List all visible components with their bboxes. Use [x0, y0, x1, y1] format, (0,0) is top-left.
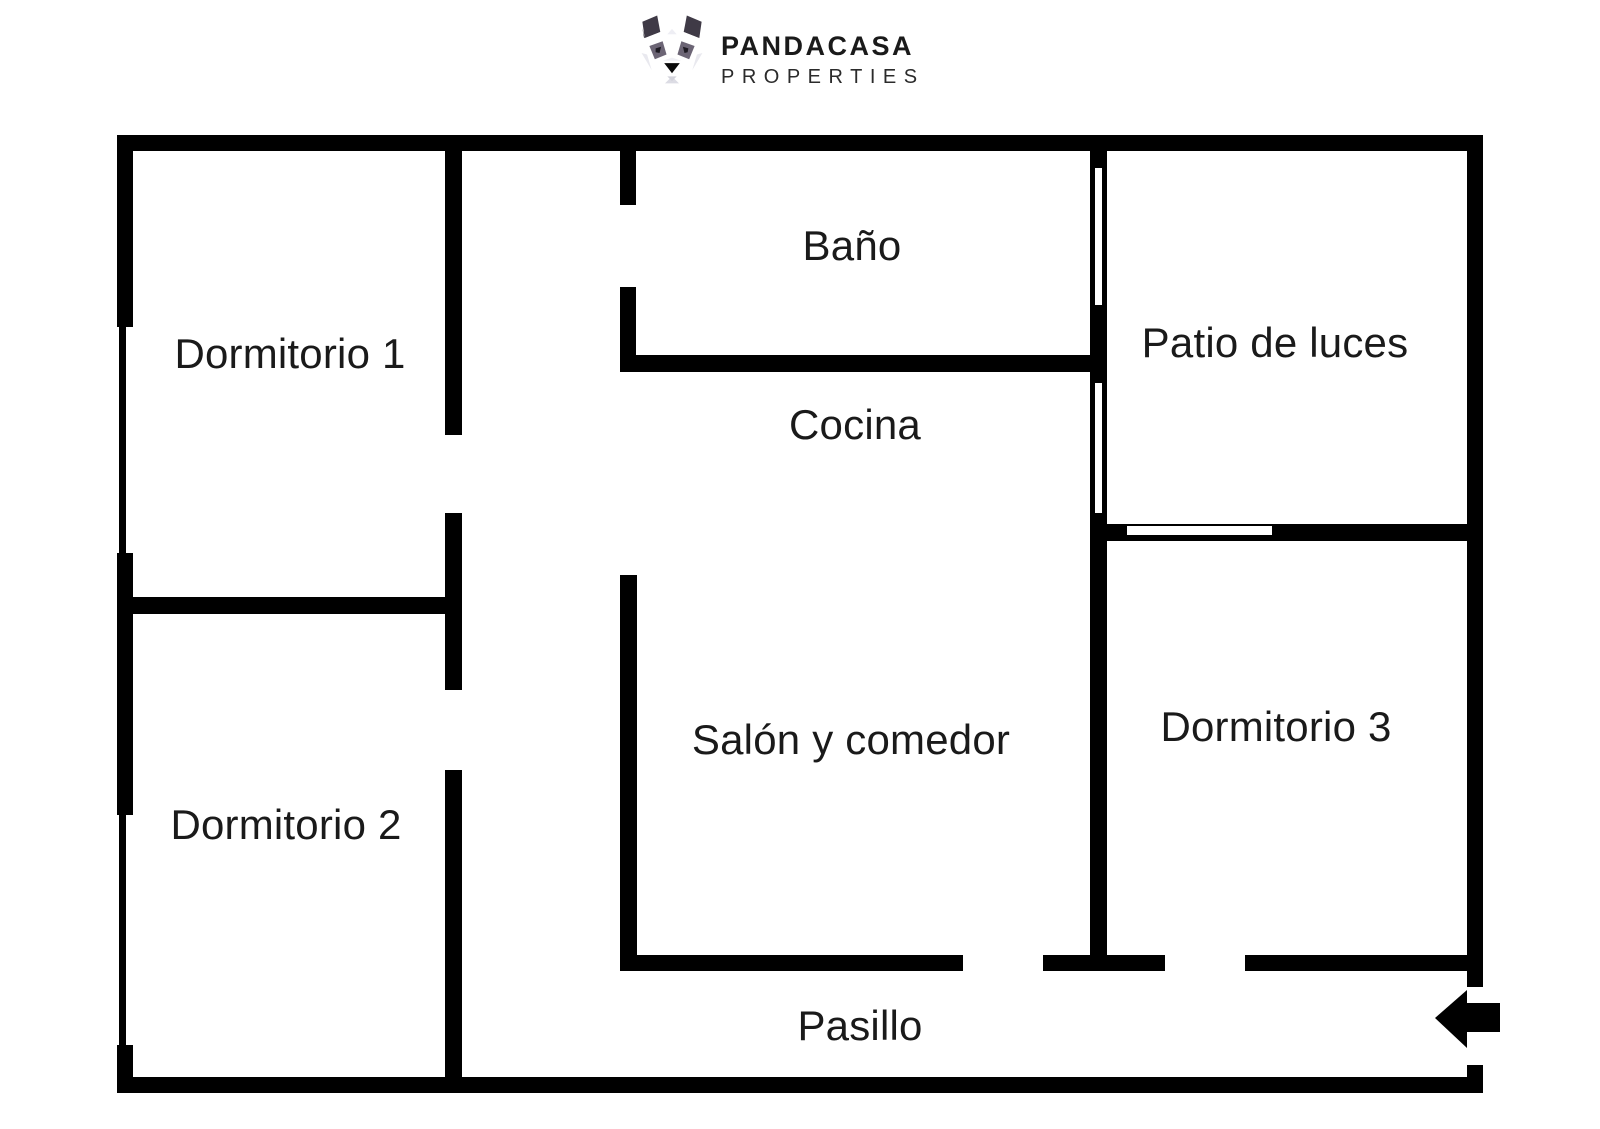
window-cocina-patio-edge-right — [1102, 383, 1107, 513]
room-label-dormitorio-3: Dormitorio 3 — [1160, 703, 1391, 751]
logo: PANDACASA PROPERTIES — [633, 14, 925, 92]
window-bano-patio-edge-right — [1102, 168, 1107, 305]
room-label-cocina: Cocina — [789, 401, 921, 449]
wall-pasillo-top-middle — [1043, 955, 1165, 971]
floor-plan: PANDACASA PROPERTIES Dormit — [0, 0, 1600, 1129]
wall-bano-left-upper — [620, 150, 636, 205]
wall-pasillo-top-salon — [620, 955, 963, 971]
wall-pasillo-top-dorm3 — [1245, 955, 1483, 971]
wall-outer-bottom — [117, 1077, 1483, 1093]
wall-salon-left — [620, 575, 637, 971]
panda-logo-icon — [633, 14, 711, 92]
window-dorm3-patio — [1127, 526, 1272, 535]
logo-text: PANDACASA PROPERTIES — [721, 19, 925, 87]
window-dormitorio-1-glass — [119, 327, 126, 553]
wall-outer-right-upper — [1467, 135, 1483, 987]
wall-outer-top — [117, 135, 1483, 151]
entrance-arrow-icon — [1430, 985, 1505, 1053]
window-dormitorio-2-glass — [119, 815, 126, 1045]
room-label-pasillo: Pasillo — [797, 1002, 922, 1050]
window-cocina-patio-edge-left — [1090, 383, 1095, 513]
wall-bano-bottom — [620, 355, 1105, 372]
wall-bedrooms-right-upper — [445, 150, 462, 435]
wall-outer-right-below-entrance — [1467, 1065, 1483, 1093]
wall-bedrooms-right-lower — [445, 770, 462, 1077]
room-label-bano: Baño — [803, 222, 902, 270]
wall-dorm1-dorm2-divider — [133, 597, 462, 614]
room-label-dormitorio-1: Dormitorio 1 — [174, 330, 405, 378]
room-label-dormitorio-2: Dormitorio 2 — [170, 801, 401, 849]
logo-brand: PANDACASA — [721, 33, 925, 60]
window-bano-patio-edge-left — [1090, 168, 1095, 305]
room-label-salon-y-comedor: Salón y comedor — [692, 716, 1010, 764]
room-label-patio-de-luces: Patio de luces — [1142, 319, 1409, 367]
logo-tagline: PROPERTIES — [721, 67, 925, 87]
